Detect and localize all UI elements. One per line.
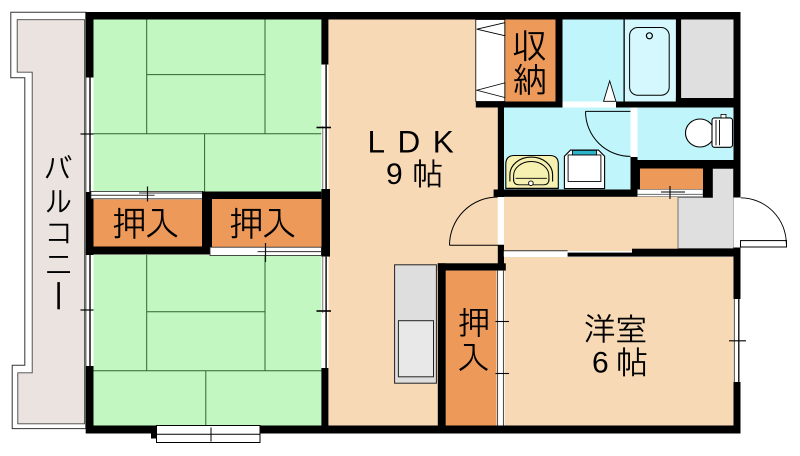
svg-text:9: 9 [386, 158, 403, 191]
svg-text:LDK: LDK [368, 124, 467, 160]
svg-text:6: 6 [592, 347, 609, 380]
